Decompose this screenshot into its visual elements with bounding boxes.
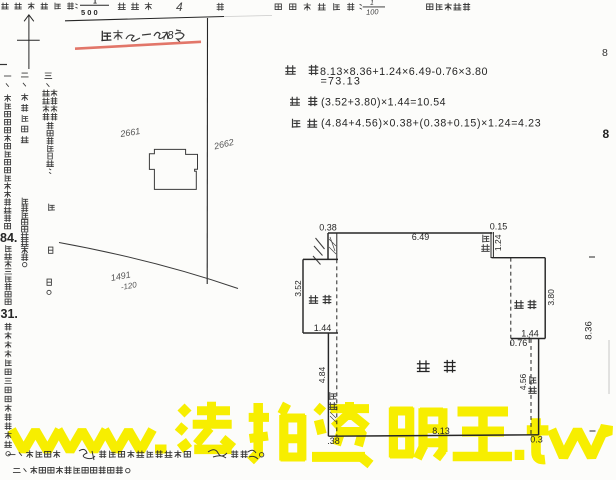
svg-text:0.76: 0.76	[510, 338, 528, 348]
svg-text:8.13: 8.13	[432, 426, 450, 436]
svg-text:2661: 2661	[119, 126, 141, 139]
svg-text:4: 4	[176, 0, 183, 14]
svg-text:100: 100	[366, 7, 380, 17]
svg-text:2662: 2662	[212, 137, 235, 152]
svg-text:0.3: 0.3	[530, 435, 543, 445]
svg-text:.38: .38	[327, 436, 340, 446]
svg-text:1: 1	[93, 0, 97, 6]
svg-text:1.24: 1.24	[493, 234, 503, 251]
svg-text:4.56: 4.56	[518, 373, 528, 390]
svg-text:84.: 84.	[0, 231, 17, 245]
svg-text:=73.13: =73.13	[321, 76, 362, 88]
svg-text:31.: 31.	[1, 307, 18, 321]
svg-text:5 0 0: 5 0 0	[81, 8, 98, 17]
svg-text:(3.52+3.80)×1.44=10.54: (3.52+3.80)×1.44=10.54	[321, 96, 446, 108]
svg-text:8: 8	[602, 47, 608, 59]
svg-text:1: 1	[370, 0, 374, 7]
svg-text:1.44: 1.44	[521, 329, 539, 339]
svg-text:8: 8	[603, 127, 610, 141]
svg-text:6.49: 6.49	[412, 232, 430, 242]
svg-text:-120: -120	[120, 280, 138, 292]
svg-text:0.38: 0.38	[319, 223, 337, 233]
svg-text:0.15: 0.15	[490, 222, 508, 232]
svg-text:78: 78	[161, 29, 176, 43]
svg-text:(4.84+4.56)×0.38+(0.38+0.15)×1: (4.84+4.56)×0.38+(0.38+0.15)×1.24=4.23	[321, 117, 541, 129]
svg-text:4.84: 4.84	[317, 366, 327, 383]
svg-text:8.36: 8.36	[584, 321, 595, 340]
svg-text:1.44: 1.44	[314, 323, 332, 333]
svg-text:3.52: 3.52	[293, 280, 303, 297]
svg-text:3.80: 3.80	[546, 289, 556, 306]
